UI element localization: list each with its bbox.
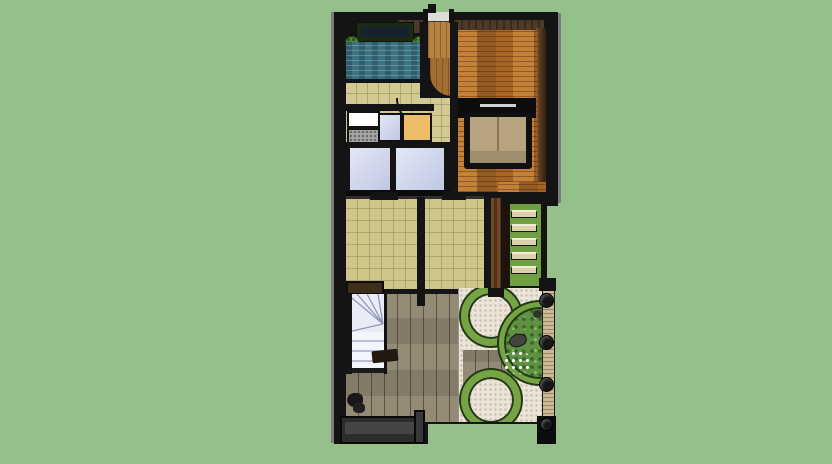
wall-segment [450,22,458,198]
gravel-garden [458,288,546,422]
step-tread [511,210,537,218]
step-tread [511,224,537,232]
console-detail [480,104,516,107]
wall-segment [420,22,428,98]
fence-post-cap [540,378,553,391]
winder-steps [352,294,384,332]
kitchen-sink [347,111,380,128]
fence-post-cap [541,419,552,430]
wall-end-post [488,288,504,297]
platform-lip [414,410,425,444]
stair-top-bench [346,281,384,295]
wall-segment [442,192,466,200]
platform-top-face [345,422,417,434]
tiled-room-floor [346,198,484,292]
sofa-seam [497,117,499,151]
step-tread [511,266,537,274]
gravel-patio-ring [461,370,521,422]
garden-rock [533,310,542,318]
flower-cluster [503,350,531,374]
winder-fan-lines [352,294,384,332]
garden-ornament [353,403,365,413]
counter-edge [344,104,434,111]
step-tread [511,238,537,246]
bench-cushion [361,27,409,37]
stair-stringer [503,204,510,286]
render-viewport[interactable] [0,0,832,464]
wall-segment [370,192,398,200]
stair-stringer [541,204,547,286]
pool-water [346,42,422,81]
glass-panel [396,148,444,191]
fence-post-cap [540,336,553,349]
sofa-shade [470,151,526,163]
room-divider-wall [417,197,425,292]
glass-panel [350,148,390,191]
fence-post-cap [540,294,553,307]
veranda-strip [489,196,503,292]
counter-orange [402,113,432,142]
counter-glass [378,113,402,142]
fence-connector [539,278,556,291]
wall-end-post [417,290,425,306]
stair-bottom-edge [352,368,384,373]
door-jamb [449,9,454,23]
step-tread [511,252,537,260]
door-leaf [428,4,436,13]
